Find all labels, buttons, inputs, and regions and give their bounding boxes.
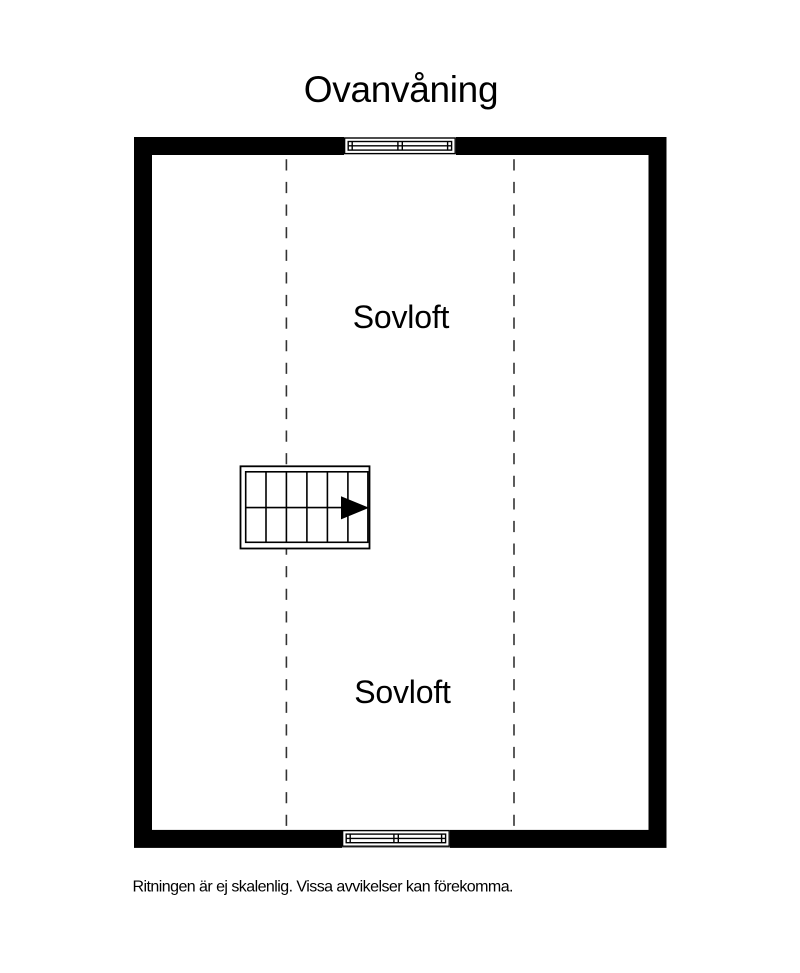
svg-text:Ritningen är ej skalenlig. Vis: Ritningen är ej skalenlig. Vissa avvikel… [133, 878, 513, 895]
svg-text:Ovanvåning: Ovanvåning [304, 69, 498, 110]
svg-text:Sovloft: Sovloft [353, 299, 450, 335]
svg-text:Sovloft: Sovloft [354, 674, 451, 710]
